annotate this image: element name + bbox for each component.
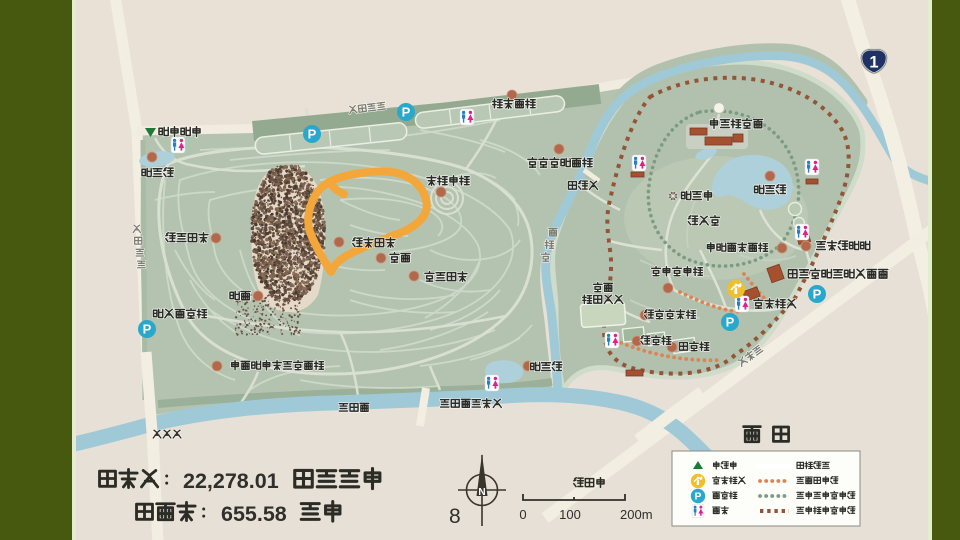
svg-text:22,278.01: 22,278.01 [183,469,279,493]
svg-text:100: 100 [559,507,581,522]
svg-text:1: 1 [869,54,878,72]
svg-text:655.58: 655.58 [221,502,287,526]
svg-text:200m: 200m [620,507,653,522]
svg-text:8: 8 [449,505,461,528]
svg-text:N: N [478,487,485,498]
svg-text:0: 0 [519,507,526,522]
